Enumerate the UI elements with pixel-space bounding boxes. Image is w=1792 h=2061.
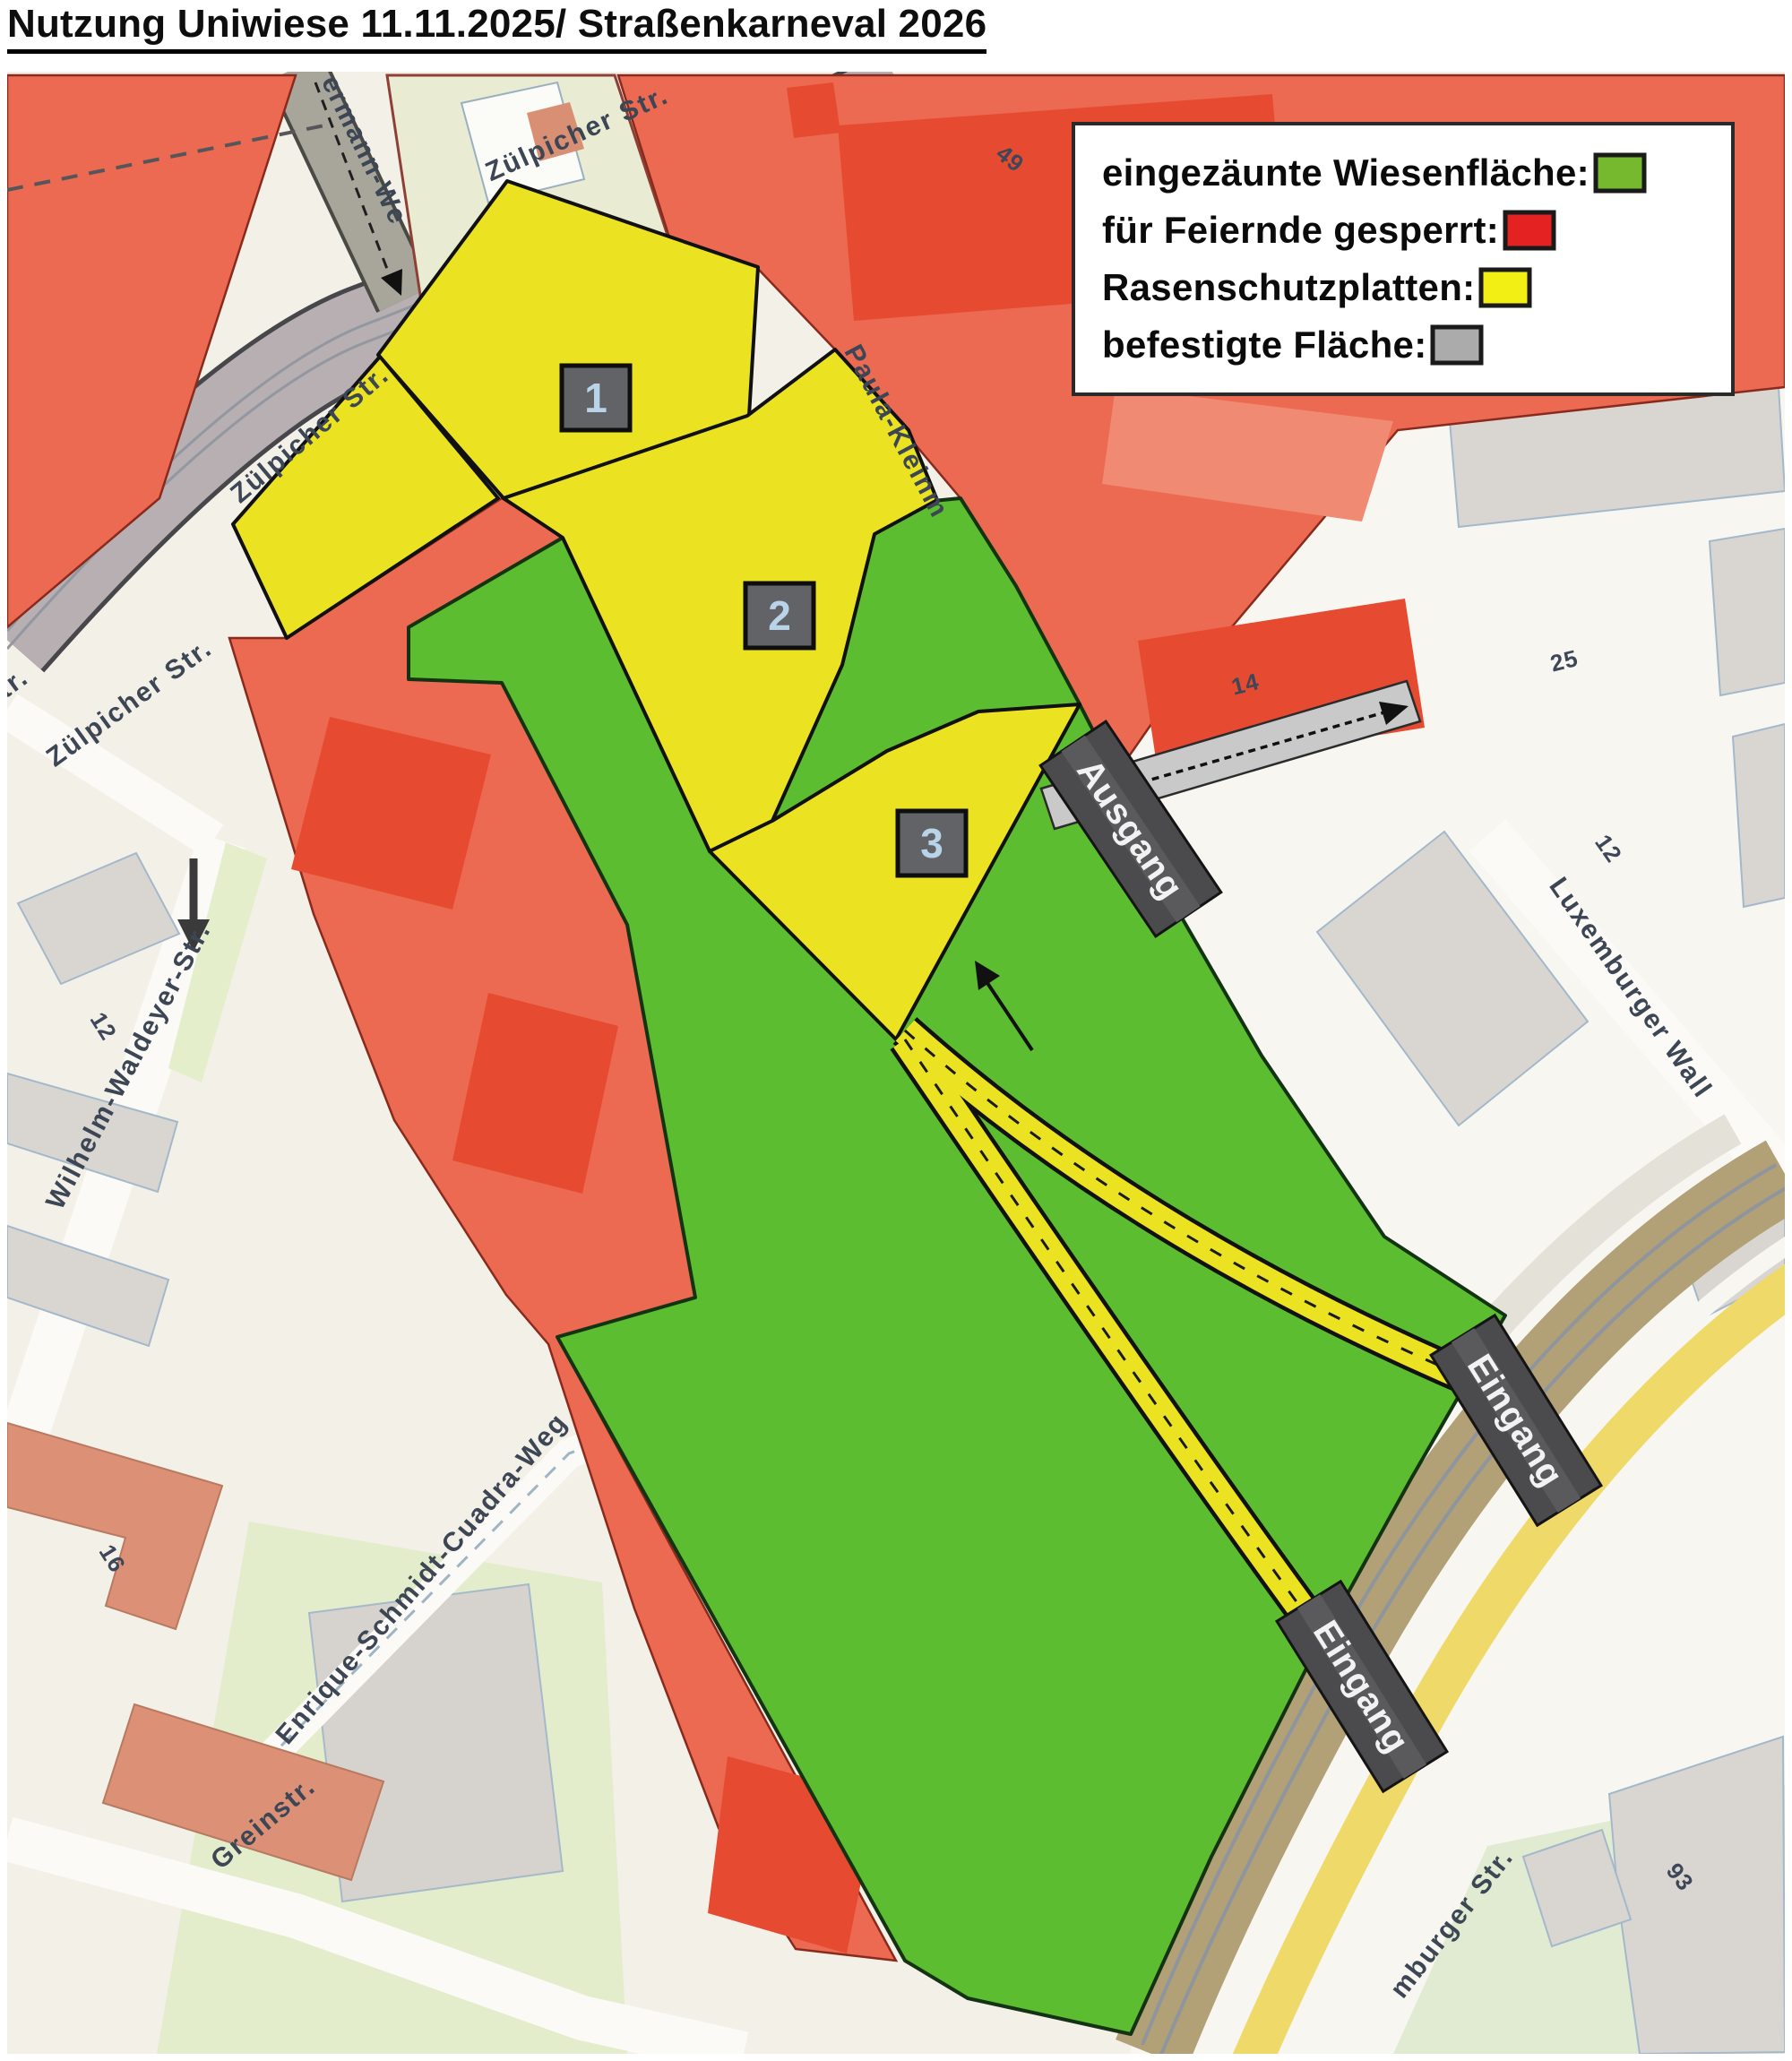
zone-marker-2: 2 bbox=[745, 583, 814, 648]
legend-swatch-red-icon bbox=[1502, 209, 1557, 252]
legend-swatch-yellow-icon bbox=[1478, 266, 1533, 309]
zone-marker-3-text: 3 bbox=[920, 820, 943, 867]
zone-marker-1-text: 1 bbox=[584, 375, 607, 421]
legend-label-meadow: eingezäunte Wiesenfläche: bbox=[1102, 147, 1590, 199]
legend-row-blocked: für Feiernde gesperrt: bbox=[1102, 204, 1704, 256]
legend: eingezäunte Wiesenfläche: für Feiernde g… bbox=[1072, 122, 1735, 396]
legend-label-blocked: für Feiernde gesperrt: bbox=[1102, 204, 1499, 256]
legend-swatch-gray-icon bbox=[1429, 323, 1485, 366]
zone-marker-2-text: 2 bbox=[768, 592, 791, 639]
legend-label-paved: befestigte Fläche: bbox=[1102, 319, 1426, 371]
legend-swatch-green-icon bbox=[1592, 151, 1648, 194]
zone-marker-3: 3 bbox=[898, 811, 966, 875]
legend-row-meadow: eingezäunte Wiesenfläche: bbox=[1102, 147, 1704, 199]
legend-label-plates: Rasenschutzplatten: bbox=[1102, 262, 1475, 314]
zone-marker-1: 1 bbox=[562, 366, 630, 430]
legend-row-paved: befestigte Fläche: bbox=[1102, 319, 1704, 371]
page-title: Nutzung Uniwiese 11.11.2025/ Straßenkarn… bbox=[7, 2, 986, 54]
legend-row-plates: Rasenschutzplatten: bbox=[1102, 262, 1704, 314]
